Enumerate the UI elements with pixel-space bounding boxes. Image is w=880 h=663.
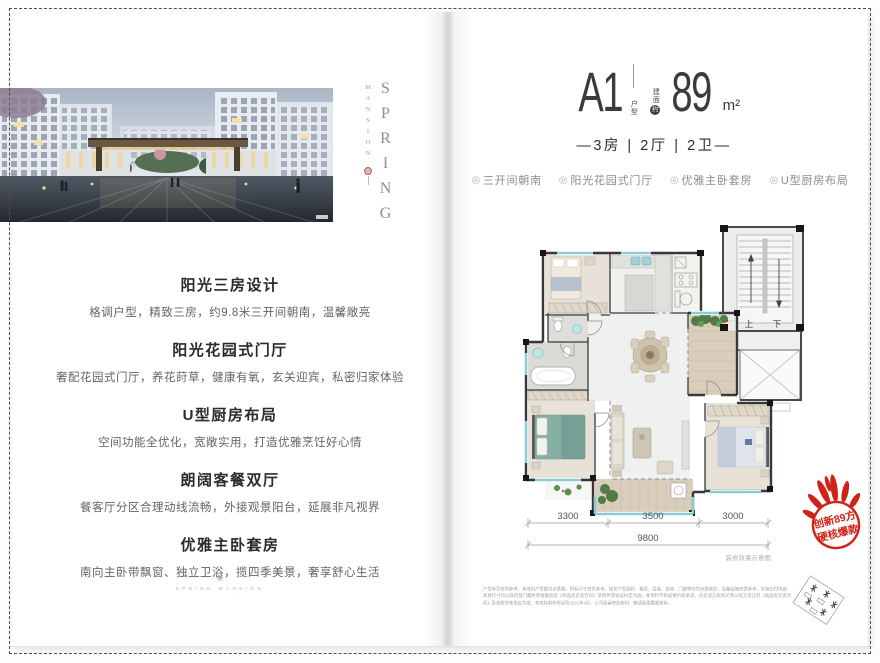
area-unit: m²: [723, 97, 741, 114]
brochure-spread: MANSION SPRING 阳光三房设计 格调户型，精致三房，约9.8米三开间…: [0, 0, 880, 663]
brand-vertical-logo: MANSION SPRING: [346, 80, 394, 260]
building-render-image: [0, 88, 333, 222]
section-body: 餐客厅分区合理动线流畅，外接观景阳台，延展非凡视界: [30, 499, 430, 515]
tag-item: ◎ 优雅主卧套房: [670, 172, 752, 188]
tag-bullet-icon: ◎: [670, 175, 680, 186]
seal-ornament: [786, 566, 850, 636]
brand-title: SPRING: [376, 80, 394, 230]
section-heading: U型厨房布局: [30, 404, 430, 425]
footer-brand-text: SPRING MANSION: [140, 586, 300, 591]
section-body: 奢配花园式门厅，养花莳草，健康有氧，玄关迎宾，私密归家体验: [30, 369, 430, 385]
dim-3500: 3500: [642, 511, 663, 522]
feature-section: 阳光花园式门厅 奢配花园式门厅，养花莳草，健康有氧，玄关迎宾，私密归家体验: [30, 339, 430, 385]
tag-bullet-icon: ◎: [471, 175, 481, 186]
flower-seal-icon: [364, 167, 372, 175]
section-heading: 优雅主卧套房: [30, 534, 430, 555]
section-body: 空间功能全优化，宽敞实用，打造优雅烹饪好心情: [30, 434, 430, 450]
tag-item: ◎ 阳光花园式门厅: [559, 172, 653, 188]
footer-dots: · · · · ·: [140, 593, 300, 598]
tag-label: U型厨房布局: [781, 172, 849, 188]
section-heading: 朗阔客餐双厅: [30, 469, 430, 490]
footer-ornament: ❋ SPRING MANSION · · · · ·: [140, 574, 300, 598]
tag-item: ◎ 三开间朝南: [471, 172, 542, 188]
title-divider: [633, 64, 634, 88]
stair-down-label: 下: [773, 319, 782, 329]
area-prefix: 建面: [650, 88, 660, 104]
feature-section: U型厨房布局 空间功能全优化，宽敞实用，打造优雅烹饪好心情: [30, 404, 430, 450]
floor-plan: 上 下: [505, 225, 810, 565]
section-heading: 阳光三房设计: [30, 274, 430, 295]
rooms-summary: —3房 | 2厅 | 2卫—: [440, 134, 868, 155]
dim-3000: 3000: [722, 511, 743, 522]
feature-section: 阳光三房设计 格调户型，精致三房，约9.8米三开间朝南，温馨敞亮: [30, 274, 430, 320]
tag-item: ◎ U型厨房布局: [769, 172, 848, 188]
area-approx-circle: 约: [650, 105, 660, 115]
snowflake-icon: ❋: [140, 574, 300, 583]
feature-tags: ◎ 三开间朝南 ◎ 阳光花园式门厅 ◎ 优雅主卧套房 ◎ U型厨房布局: [470, 172, 850, 188]
tag-label: 阳光花园式门厅: [570, 172, 653, 188]
section-heading: 阳光花园式门厅: [30, 339, 430, 360]
tag-label: 优雅主卧套房: [682, 172, 753, 188]
unit-code: A1: [578, 68, 622, 116]
feature-sections: 阳光三房设计 格调户型，精致三房，约9.8米三开间朝南，温馨敞亮 阳光花园式门厅…: [30, 274, 430, 599]
flame-badge-icon: 创新89方 硬核爆款: [796, 473, 876, 565]
section-body: 格调户型，精致三房，约9.8米三开间朝南，温馨敞亮: [30, 304, 430, 320]
dim-total: 9800: [637, 533, 658, 544]
brand-subtitle: MANSION: [365, 84, 372, 161]
legal-disclaimer: 户型单页仅供参考，本资料户型图为示意图，所标尺寸仅供参考，相关户型面积、格局、层…: [483, 587, 791, 607]
stair-up-label: 上: [745, 319, 754, 329]
unit-code-label: 户型: [628, 100, 638, 116]
tag-bullet-icon: ◎: [559, 175, 569, 186]
tag-bullet-icon: ◎: [769, 175, 779, 186]
tag-label: 三开间朝南: [483, 172, 542, 188]
dim-3300: 3300: [557, 511, 578, 522]
plan-caption: 装修效果示意图: [726, 553, 772, 562]
feature-section: 朗阔客餐双厅 餐客厅分区合理动线流畅，外接观景阳台，延展非凡视界: [30, 469, 430, 515]
unit-title-block: A1 户型 建面 约 89 m²: [440, 64, 868, 116]
area-value: 89: [672, 68, 712, 116]
flower-stem-icon: [368, 176, 369, 185]
